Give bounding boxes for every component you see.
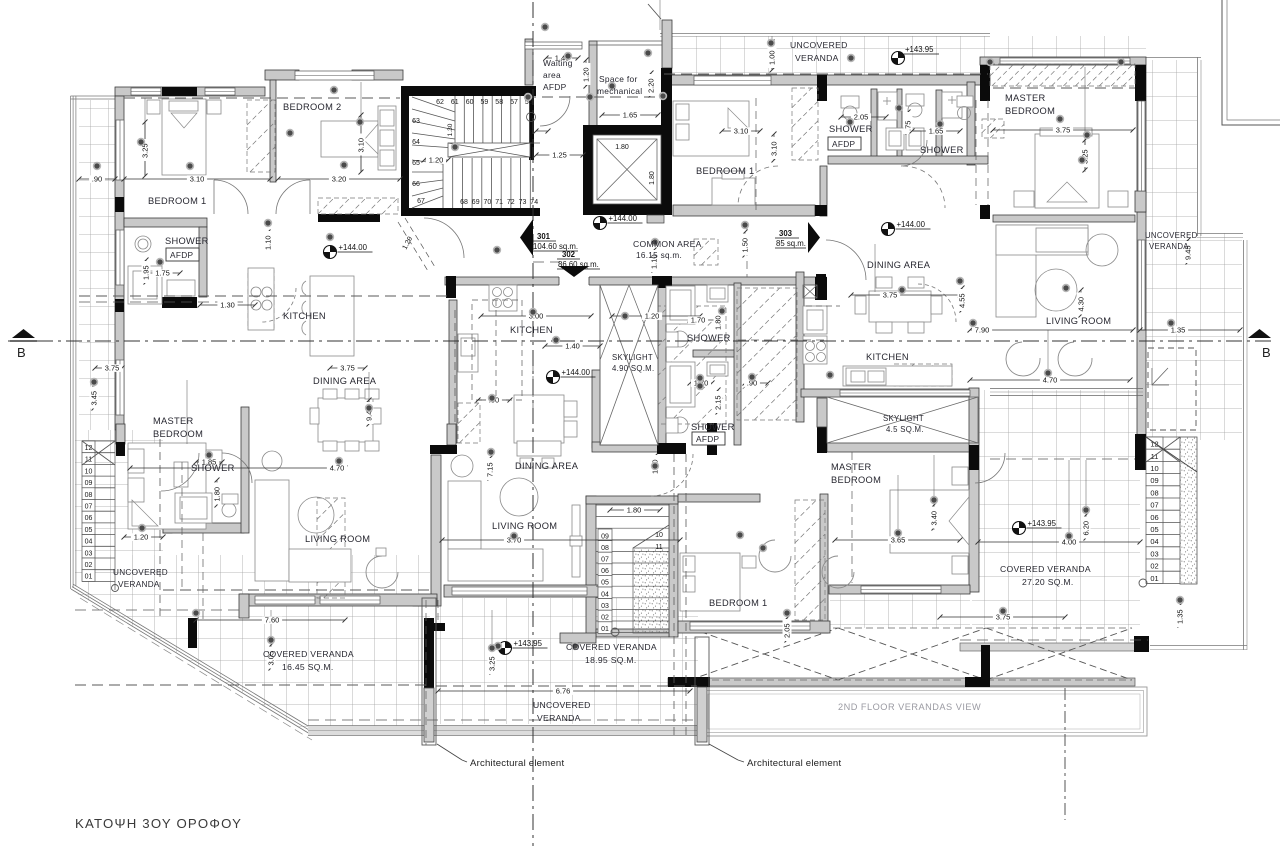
svg-text:SKYLIGHT: SKYLIGHT xyxy=(612,353,653,362)
svg-text:1.80: 1.80 xyxy=(627,506,642,515)
svg-text:+144.00: +144.00 xyxy=(897,220,926,229)
svg-text:Waiting: Waiting xyxy=(543,58,573,68)
svg-text:COVERED VERANDA: COVERED VERANDA xyxy=(1000,564,1091,574)
svg-text:3.75: 3.75 xyxy=(340,364,355,373)
svg-text:05: 05 xyxy=(85,527,93,534)
svg-text:04: 04 xyxy=(85,539,93,546)
svg-text:BEDROOM 1: BEDROOM 1 xyxy=(148,196,207,206)
svg-text:KITCHEN: KITCHEN xyxy=(510,325,553,335)
svg-text:7.15: 7.15 xyxy=(486,462,495,477)
svg-text:01: 01 xyxy=(85,574,93,581)
svg-text:3.10: 3.10 xyxy=(190,175,205,184)
svg-text:3.20: 3.20 xyxy=(332,175,347,184)
svg-text:UNCOVERED: UNCOVERED xyxy=(790,40,848,50)
svg-text:74: 74 xyxy=(530,199,538,206)
svg-text:SHOWER: SHOWER xyxy=(687,333,731,343)
svg-text:09: 09 xyxy=(85,480,93,487)
svg-text:05: 05 xyxy=(601,580,609,587)
svg-text:72: 72 xyxy=(507,199,515,206)
svg-text:70: 70 xyxy=(484,199,492,206)
svg-text:06: 06 xyxy=(1150,513,1158,522)
svg-text:Architectural element: Architectural element xyxy=(470,758,564,769)
svg-text:18.95 SQ.M.: 18.95 SQ.M. xyxy=(585,655,637,665)
svg-text:04: 04 xyxy=(1150,537,1158,546)
svg-text:60: 60 xyxy=(466,99,474,106)
svg-text:+143.95: +143.95 xyxy=(905,45,934,54)
svg-text:11: 11 xyxy=(1151,452,1159,461)
svg-text:03: 03 xyxy=(85,550,93,557)
svg-text:66: 66 xyxy=(412,181,420,188)
svg-text:BEDROOM: BEDROOM xyxy=(831,475,881,485)
svg-text:09: 09 xyxy=(601,533,609,540)
svg-text:7.60: 7.60 xyxy=(265,616,280,625)
svg-text:64: 64 xyxy=(412,139,420,146)
svg-text:03: 03 xyxy=(1150,549,1158,558)
svg-text:+144.00: +144.00 xyxy=(562,368,591,377)
svg-text:MASTER: MASTER xyxy=(831,462,872,472)
svg-text:SHOWER: SHOWER xyxy=(920,145,964,155)
svg-text:01: 01 xyxy=(601,626,609,633)
svg-text:MASTER: MASTER xyxy=(1005,93,1046,103)
svg-text:08: 08 xyxy=(601,545,609,552)
svg-text:63: 63 xyxy=(412,118,420,125)
svg-text:4.30: 4.30 xyxy=(1077,297,1086,312)
svg-text:2.05: 2.05 xyxy=(783,623,792,638)
svg-text:69: 69 xyxy=(472,199,480,206)
svg-text:AFDP: AFDP xyxy=(543,82,567,92)
svg-text:61: 61 xyxy=(451,99,459,106)
svg-text:1.65: 1.65 xyxy=(623,111,638,120)
svg-text:1.75: 1.75 xyxy=(155,269,170,278)
svg-text:68: 68 xyxy=(460,199,468,206)
svg-text:301: 301 xyxy=(537,232,551,241)
svg-text:10: 10 xyxy=(655,532,663,539)
svg-text:1.35: 1.35 xyxy=(1176,609,1185,624)
svg-text:UNCOVERED: UNCOVERED xyxy=(533,700,591,710)
svg-text:05: 05 xyxy=(1150,525,1158,534)
svg-text:7.90: 7.90 xyxy=(975,326,990,335)
svg-text:Architectural element: Architectural element xyxy=(747,758,841,769)
svg-text:59: 59 xyxy=(481,99,489,106)
svg-text:1.50: 1.50 xyxy=(741,238,750,253)
svg-text:06: 06 xyxy=(85,515,93,522)
svg-text:86.60 sq.m.: 86.60 sq.m. xyxy=(558,260,599,269)
svg-text:302: 302 xyxy=(562,250,576,259)
svg-text:+143.95: +143.95 xyxy=(514,639,543,648)
svg-text:BEDROOM: BEDROOM xyxy=(1005,106,1055,116)
svg-text:27.20 SQ.M.: 27.20 SQ.M. xyxy=(1022,577,1074,587)
svg-text:03: 03 xyxy=(601,603,609,610)
svg-text:4.70: 4.70 xyxy=(330,464,345,473)
svg-text:3.40: 3.40 xyxy=(930,511,939,526)
svg-text:SHOWER: SHOWER xyxy=(691,422,735,432)
svg-text:MASTER: MASTER xyxy=(153,416,194,426)
svg-text:2.20: 2.20 xyxy=(647,78,656,93)
svg-text:4.70: 4.70 xyxy=(1043,376,1058,385)
svg-text:57: 57 xyxy=(510,99,518,106)
svg-text:KITCHEN: KITCHEN xyxy=(866,352,909,362)
svg-text:1.30: 1.30 xyxy=(220,301,235,310)
svg-text:08: 08 xyxy=(1150,488,1158,497)
svg-text:+144.00: +144.00 xyxy=(609,214,638,223)
svg-text:62: 62 xyxy=(436,99,444,106)
svg-text:1.70: 1.70 xyxy=(691,316,706,325)
svg-text:65: 65 xyxy=(412,160,420,167)
svg-text:3.45: 3.45 xyxy=(90,391,99,406)
svg-text:71: 71 xyxy=(495,199,503,206)
svg-text:3.75: 3.75 xyxy=(105,364,120,373)
svg-text:1.20: 1.20 xyxy=(645,312,660,321)
svg-text:SHOWER: SHOWER xyxy=(191,463,235,473)
svg-text:KITCHEN: KITCHEN xyxy=(283,311,326,321)
svg-text:.90: .90 xyxy=(92,175,102,184)
svg-text:DINING AREA: DINING AREA xyxy=(867,260,931,270)
svg-text:3.10: 3.10 xyxy=(770,141,779,156)
svg-text:04: 04 xyxy=(601,591,609,598)
svg-text:VERANDA: VERANDA xyxy=(118,580,160,589)
svg-text:1.80: 1.80 xyxy=(714,315,723,330)
svg-text:1.10: 1.10 xyxy=(264,235,273,250)
svg-text:AFDP: AFDP xyxy=(696,434,719,444)
svg-text:1.35: 1.35 xyxy=(1171,326,1186,335)
svg-text:07: 07 xyxy=(601,557,609,564)
svg-text:10: 10 xyxy=(85,468,93,475)
svg-text:11: 11 xyxy=(655,544,662,551)
svg-text:10: 10 xyxy=(1150,464,1158,473)
svg-text:85 sq.m.: 85 sq.m. xyxy=(776,239,806,248)
svg-text:1.80: 1.80 xyxy=(213,487,222,502)
svg-text:ΚΑΤΟΨΗ 3ΟΥ ΟΡΟΦΟΥ: ΚΑΤΟΨΗ 3ΟΥ ΟΡΟΦΟΥ xyxy=(75,816,242,831)
svg-text:.75: .75 xyxy=(904,121,913,131)
svg-text:SKYLIGHT: SKYLIGHT xyxy=(883,414,924,423)
svg-text:06: 06 xyxy=(601,568,609,575)
svg-text:+143.95: +143.95 xyxy=(1028,519,1057,528)
svg-text:BEDROOM 1: BEDROOM 1 xyxy=(709,598,768,608)
svg-text:07: 07 xyxy=(1150,501,1158,510)
svg-text:1.80: 1.80 xyxy=(615,144,629,151)
svg-text:LIVING ROOM: LIVING ROOM xyxy=(305,534,370,544)
svg-text:02: 02 xyxy=(601,615,609,622)
svg-text:1.30: 1.30 xyxy=(447,123,454,136)
svg-text:1.40: 1.40 xyxy=(565,342,580,351)
svg-text:SHOWER: SHOWER xyxy=(829,124,873,134)
svg-text:09: 09 xyxy=(1150,476,1158,485)
svg-text:2.15: 2.15 xyxy=(714,395,723,410)
svg-text:AFDP: AFDP xyxy=(170,250,193,260)
svg-text:AFDP: AFDP xyxy=(832,139,855,149)
svg-text:COVERED VERANDA: COVERED VERANDA xyxy=(263,649,354,659)
svg-text:3.75: 3.75 xyxy=(883,291,898,300)
svg-text:SHOWER: SHOWER xyxy=(165,236,209,246)
svg-text:COMMON AREA: COMMON AREA xyxy=(633,239,702,249)
svg-text:area: area xyxy=(543,70,561,80)
svg-text:4.90 SQ.M.: 4.90 SQ.M. xyxy=(612,364,654,373)
svg-text:VERANDA: VERANDA xyxy=(795,53,839,63)
svg-text:2.05: 2.05 xyxy=(854,113,869,122)
svg-text:303: 303 xyxy=(779,229,793,238)
svg-text:08: 08 xyxy=(85,492,93,499)
svg-text:DINING AREA: DINING AREA xyxy=(313,376,377,386)
svg-text:1.20: 1.20 xyxy=(582,67,591,82)
svg-text:1.80: 1.80 xyxy=(649,171,656,185)
svg-text:UNCOVERED: UNCOVERED xyxy=(113,568,168,577)
svg-text:4.5 SQ.M.: 4.5 SQ.M. xyxy=(886,425,924,434)
svg-text:DINING AREA: DINING AREA xyxy=(515,461,579,471)
svg-text:4.55: 4.55 xyxy=(958,293,967,308)
svg-text:BEDROOM: BEDROOM xyxy=(153,429,203,439)
svg-text:VERANDA: VERANDA xyxy=(1149,242,1189,251)
svg-text:COVERED VERANDA: COVERED VERANDA xyxy=(566,642,657,652)
svg-text:B: B xyxy=(17,345,26,360)
svg-text:LIVING ROOM: LIVING ROOM xyxy=(1046,316,1111,326)
svg-text:Space for: Space for xyxy=(599,74,638,84)
svg-text:07: 07 xyxy=(85,504,93,511)
svg-text:58: 58 xyxy=(495,99,503,106)
svg-text:16.15 sq.m.: 16.15 sq.m. xyxy=(636,251,682,260)
svg-text:BEDROOM 2: BEDROOM 2 xyxy=(283,102,342,112)
svg-text:67: 67 xyxy=(417,198,425,205)
svg-text:02: 02 xyxy=(85,562,93,569)
svg-text:1.00: 1.00 xyxy=(768,50,777,65)
svg-text:1.20: 1.20 xyxy=(429,156,444,165)
svg-text:BEDROOM 1: BEDROOM 1 xyxy=(696,166,755,176)
svg-text:UNCOVERED: UNCOVERED xyxy=(1145,231,1198,240)
svg-text:1.25: 1.25 xyxy=(552,151,567,160)
svg-text:3.75: 3.75 xyxy=(1056,126,1071,135)
svg-text:LIVING ROOM: LIVING ROOM xyxy=(492,521,557,531)
svg-text:+144.00: +144.00 xyxy=(339,243,368,252)
svg-text:1.95: 1.95 xyxy=(142,265,151,280)
svg-text:3.10: 3.10 xyxy=(357,138,366,153)
svg-text:mechanical: mechanical xyxy=(597,86,642,96)
svg-text:1.20: 1.20 xyxy=(134,533,149,542)
svg-text:01: 01 xyxy=(1150,574,1158,583)
svg-text:VERANDA: VERANDA xyxy=(537,713,581,723)
svg-text:2ND FLOOR VERANDAS VIEW: 2ND FLOOR VERANDAS VIEW xyxy=(838,702,981,712)
svg-text:73: 73 xyxy=(519,199,527,206)
svg-text:16.45 SQ.M.: 16.45 SQ.M. xyxy=(282,662,334,672)
svg-text:B: B xyxy=(1262,345,1271,360)
svg-text:3.25: 3.25 xyxy=(488,656,497,671)
svg-text:3.10: 3.10 xyxy=(734,127,749,136)
svg-text:02: 02 xyxy=(1150,562,1158,571)
svg-text:6.76: 6.76 xyxy=(556,687,571,696)
svg-text:6.20: 6.20 xyxy=(1082,521,1091,536)
